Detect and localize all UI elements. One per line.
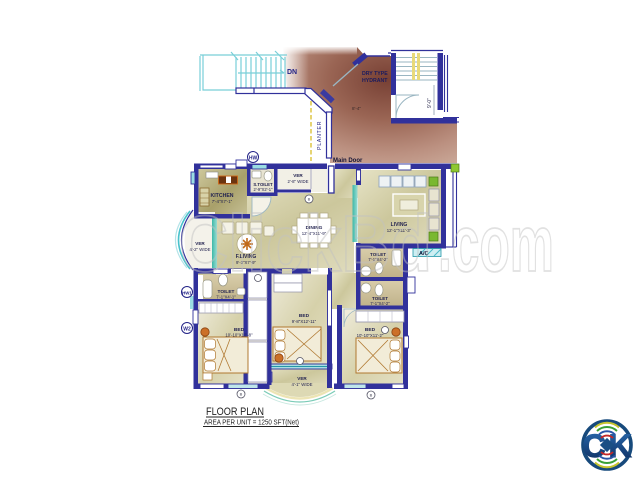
svg-text:HW: HW xyxy=(249,156,258,162)
svg-text:Main Door: Main Door xyxy=(333,158,363,164)
svg-text:W2: W2 xyxy=(183,327,191,333)
svg-text:VER: VER xyxy=(297,376,307,381)
svg-text:8'-4": 8'-4" xyxy=(352,106,361,111)
svg-text:2'-8" WIDE: 2'-8" WIDE xyxy=(288,179,309,184)
svg-text:AREA PER UNIT = 1250 SFT(Net): AREA PER UNIT = 1250 SFT(Net) xyxy=(204,418,299,427)
svg-text:B: B xyxy=(370,393,373,398)
svg-text:FLOOR PLAN: FLOOR PLAN xyxy=(206,406,264,418)
svg-text:9'-8"X12'-11": 9'-8"X12'-11" xyxy=(292,319,317,324)
svg-text:PLANTER: PLANTER xyxy=(317,121,323,150)
svg-text:VER: VER xyxy=(293,173,303,178)
svg-text:.com: .com xyxy=(438,199,554,288)
svg-text:7'-1"X4'-2": 7'-1"X4'-2" xyxy=(370,301,390,306)
svg-text:DN: DN xyxy=(287,69,297,76)
svg-text:7'-1"X4'-1": 7'-1"X4'-1" xyxy=(216,295,236,300)
svg-text:ClickBd: ClickBd xyxy=(179,199,432,288)
svg-text:B: B xyxy=(240,392,243,397)
svg-text:4'-1" WIDE: 4'-1" WIDE xyxy=(292,382,313,387)
svg-text:10'-10"X11'-2": 10'-10"X11'-2" xyxy=(357,333,384,338)
svg-text:HW1: HW1 xyxy=(182,291,192,296)
svg-text:HYDRANT: HYDRANT xyxy=(362,78,388,84)
svg-text:2'-9"X2'-1": 2'-9"X2'-1" xyxy=(253,187,273,192)
svg-text:9'-0": 9'-0" xyxy=(427,98,433,108)
svg-text:DRY TYPE: DRY TYPE xyxy=(362,71,388,77)
